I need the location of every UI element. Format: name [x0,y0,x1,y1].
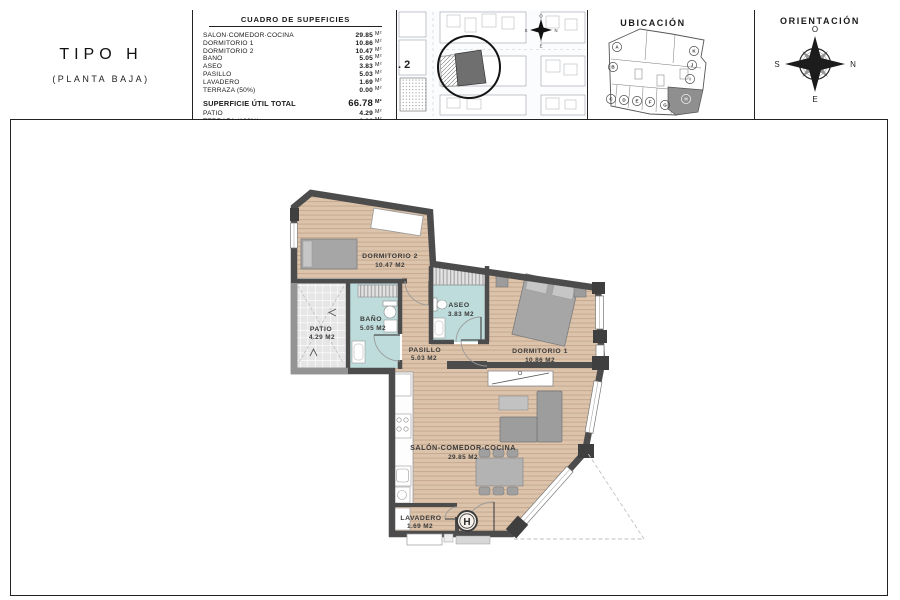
orientacion-panel: ORIENTACIÓN O N E S [755,10,888,119]
svg-text:E: E [635,99,638,104]
svg-text:N: N [554,28,557,33]
sheet-floor-subtitle: (PLANTA BAJA) [52,74,149,84]
orientacion-title: ORIENTACIÓN [780,15,860,26]
label-bano: BAÑO [360,314,382,323]
label-lavadero: LAVADERO [400,515,441,522]
svg-text:J: J [691,63,694,68]
label-patio: PATIO [310,326,332,333]
coffee-table [499,396,528,410]
svg-text:1.69 M2: 1.69 M2 [407,523,433,530]
svg-text:F: F [649,100,652,105]
svg-text:H: H [463,517,470,528]
table-row: BAÑO5.05M² [203,55,388,63]
site-plan-panel: O N E S . 2 [397,10,588,119]
title-strip: TIPO H (PLANTA BAJA) CUADRO DE SUPEFICIE… [10,10,888,120]
svg-text:5.05 M2: 5.05 M2 [360,325,386,332]
svg-text:G: G [663,103,667,108]
table-row: PATIO4.29M² [203,110,388,118]
table-row: DORMITORIO 110.86M² [203,40,388,48]
svg-text:3.83 M2: 3.83 M2 [448,311,474,318]
svg-text:10.86 M2: 10.86 M2 [525,357,555,364]
svg-text:10.47 M2: 10.47 M2 [375,262,405,269]
table-row: ASEO3.83M² [203,63,388,71]
svg-text:O: O [812,25,818,34]
table-row: TERRAZA (100%)0.00M² [203,118,388,119]
dining-set [476,449,523,495]
svg-text:5.03 M2: 5.03 M2 [411,355,437,362]
table-total-row: SUPERFICIE ÚTIL TOTAL66.78M² [203,97,388,110]
table-row: PASILLO5.03M² [203,71,388,79]
unit-badge: H [457,511,477,531]
sheet-type-title: TIPO H [59,46,142,64]
svg-text:E: E [812,95,817,104]
table-row: DORMITORIO 210.47M² [203,48,388,56]
table-row: TERRAZA (50%)0.00M² [203,87,388,95]
surface-table-title: CUADRO DE SUPEFICIES [209,15,382,27]
shower-strip [358,285,400,297]
label-dormitorio1: DORMITORIO 1 [512,348,568,355]
bed-dormitorio2 [301,239,357,269]
title-block: TIPO H (PLANTA BAJA) [10,10,193,119]
basin-bano [352,341,365,363]
highlighted-plot [455,50,486,86]
toilet-bano [383,301,397,318]
block-number-label: . 2 [398,59,410,71]
surface-table: CUADRO DE SUPEFICIES SALÓN·COMEDOR·COCIN… [193,10,397,119]
label-dormitorio2: DORMITORIO 2 [362,253,418,260]
washer-icon [394,487,410,503]
stove-icon [394,414,411,438]
label-aseo: ASEO [448,302,469,309]
svg-text:S: S [525,28,528,33]
ubicacion-title: UBICACIÓN [620,17,685,28]
sink-icon [394,466,411,486]
ubicacion-keyplan: UBICACIÓN A B C D E F G H [588,10,753,118]
svg-text:S: S [774,60,779,69]
svg-text:29.85 M2: 29.85 M2 [448,454,478,461]
label-pasillo: PASILLO [409,347,441,354]
site-plan-map: O N E S . 2 [397,10,586,118]
svg-text:E: E [540,44,543,49]
table-row: LAVADERO1.69M² [203,79,388,87]
label-salon: SALÓN-COMEDOR-COCINA [410,443,516,452]
ubicacion-panel: UBICACIÓN A B C D E F G H [588,10,755,119]
svg-text:N: N [850,60,856,69]
compass-rose-icon: ORIENTACIÓN O N E S [755,10,886,118]
basin-aseo [433,318,445,338]
sideboard [488,371,553,386]
svg-text:I: I [689,77,690,82]
table-row: SALÓN·COMEDOR·COCINA29.85M² [203,32,388,40]
svg-text:4.29 M2: 4.29 M2 [309,334,335,341]
